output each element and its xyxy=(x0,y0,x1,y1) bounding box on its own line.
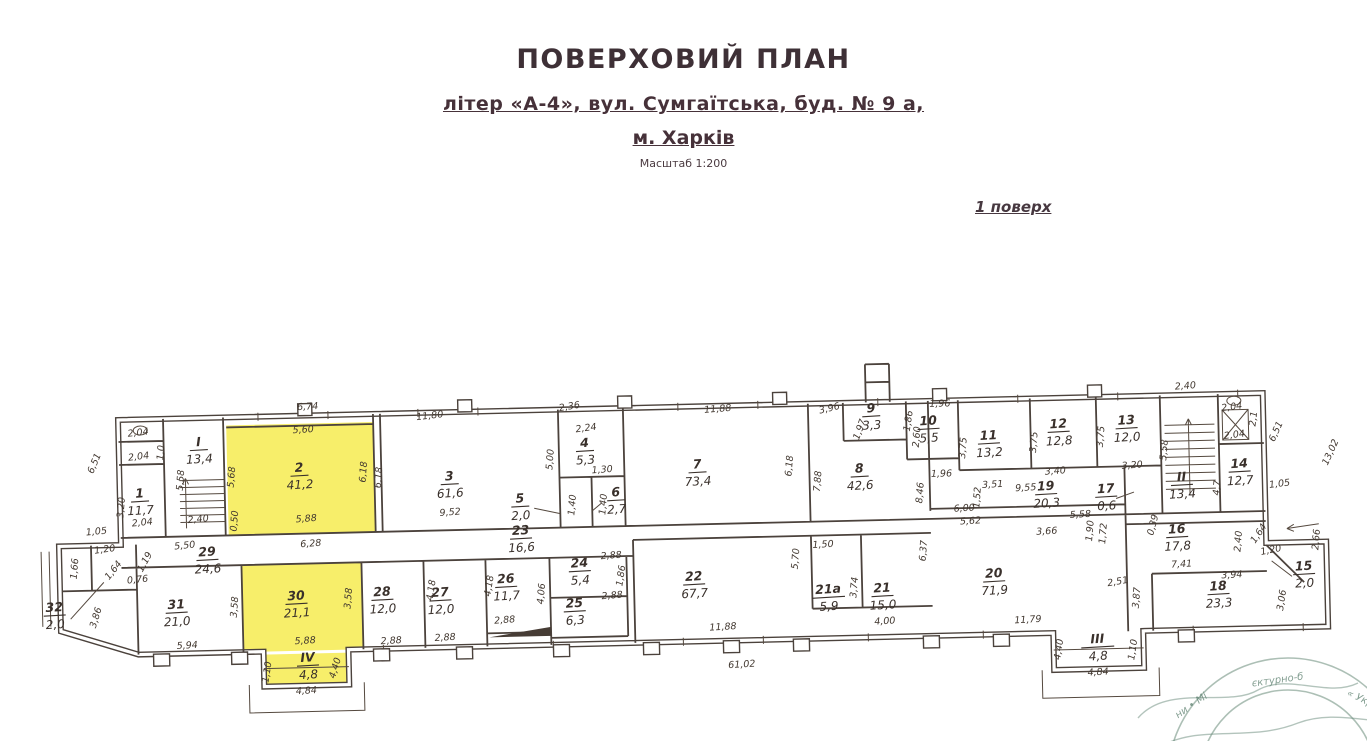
room-11-label: 1113,2 xyxy=(975,427,1004,461)
room-number: 32 xyxy=(45,599,63,615)
room-13-label: 1312,0 xyxy=(1112,411,1141,445)
room-25-label: 256,3 xyxy=(563,595,587,628)
room-number: 11 xyxy=(979,427,997,443)
dim-label: 1,20 xyxy=(1260,543,1283,558)
dim-label: 6,18 xyxy=(783,455,796,477)
dim-label: 5,50 xyxy=(174,540,196,553)
room-1-label: 111,7 xyxy=(126,485,155,519)
dim-label: 3,51 xyxy=(982,479,1004,491)
dim-label: 0,39 xyxy=(1145,513,1161,536)
room-19-label: 1920,3 xyxy=(1032,477,1061,511)
dim-label: 6,18 xyxy=(357,461,370,483)
room-area: 21,1 xyxy=(283,605,310,621)
dim-label: 4,40 xyxy=(1052,638,1066,661)
dim-label: 3,66 xyxy=(1036,526,1058,538)
dim-label: 4,7 xyxy=(1211,480,1223,496)
dim-label: 2,66 xyxy=(1310,529,1323,551)
dim-label: 5,70 xyxy=(790,548,803,570)
dim-label: 2,04 xyxy=(128,450,150,463)
stamp-text: єктурно-б xyxy=(1251,670,1304,689)
dim-label: 2,88 xyxy=(600,550,622,563)
dim-label: 1,10 xyxy=(1126,638,1140,661)
dim-label: 2,51 xyxy=(1106,575,1129,589)
room-8-label: 842,6 xyxy=(845,460,874,494)
dim-label: 6,74 xyxy=(297,401,319,413)
room-area: 5,4 xyxy=(570,573,590,588)
dim-label: 2,1 xyxy=(1247,411,1260,427)
room-number: 5 xyxy=(515,490,525,506)
room-17-label: 170,6 xyxy=(1094,480,1118,513)
room-number: 2 xyxy=(294,460,304,475)
dim-label: 3,40 xyxy=(1044,465,1066,478)
dim-label: 11,88 xyxy=(709,621,737,634)
room-area: 61,6 xyxy=(437,485,465,501)
room-number: 20 xyxy=(985,565,1004,581)
room-I-label: I13,4 xyxy=(185,433,214,467)
dim-label: 1,19 xyxy=(135,550,155,574)
room-area: 4,8 xyxy=(299,667,319,682)
dim-label: 3,86 xyxy=(88,606,105,629)
room-20-label: 2071,9 xyxy=(980,565,1009,599)
dim-label: 3,06 xyxy=(1275,589,1289,612)
room-number: 31 xyxy=(167,596,185,612)
dim-label: 3,94 xyxy=(1221,569,1243,581)
dim-label: 1,20 xyxy=(94,543,116,557)
dim-label: 1,64 xyxy=(103,559,125,582)
room-area: 6,3 xyxy=(565,613,585,628)
room-area: 2,0 xyxy=(1295,576,1315,591)
room-number: 21а xyxy=(815,581,842,597)
dim-label: 2,60 xyxy=(911,426,924,448)
dim-label: 5,58 xyxy=(1158,439,1171,461)
room-number: ІV xyxy=(300,649,317,665)
dim-label: 11,88 xyxy=(704,403,732,416)
dim-label: 3,87 xyxy=(1131,587,1144,609)
dim-label: 9,52 xyxy=(439,506,461,519)
room-number: 13 xyxy=(1117,412,1135,428)
room-area: 15,0 xyxy=(869,597,897,613)
scanned-floor-plan-page: { "header": { "title": "ПОВЕРХОВИЙ ПЛАН"… xyxy=(0,0,1367,741)
dim-label: 3,75 xyxy=(957,437,970,459)
stamp-text: « Украї xyxy=(1345,688,1367,714)
dim-label: 6,28 xyxy=(300,538,322,551)
dim-label: 1,96 xyxy=(929,398,950,409)
room-number: 10 xyxy=(919,412,938,428)
room-area: 24,6 xyxy=(194,561,222,577)
dim-label: 9,55 xyxy=(1015,482,1037,494)
room-26-label: 2611,7 xyxy=(492,570,521,604)
room-area: 13,4 xyxy=(186,451,213,467)
room-area: 42,6 xyxy=(846,478,874,494)
room-number: I xyxy=(196,434,202,449)
dim-label: 2,04 xyxy=(127,426,149,439)
room-III-label: III4,8 xyxy=(1080,630,1115,664)
room-area: 4,8 xyxy=(1088,648,1108,663)
dim-label: 1,30 xyxy=(591,464,613,477)
room-number: 19 xyxy=(1037,478,1056,494)
dim-label: 5,62 xyxy=(960,515,982,527)
dim-label: 6,18 xyxy=(373,467,386,489)
room-29-label: 2924,6 xyxy=(193,543,222,577)
dim-label: 3,75 xyxy=(1028,431,1041,453)
dim-label: 7,88 xyxy=(812,470,825,492)
room-number: 26 xyxy=(497,570,516,586)
dim-label: 4,84 xyxy=(295,685,317,697)
room-area: 73,4 xyxy=(684,474,711,490)
dim-label: 5,58 xyxy=(175,469,188,491)
room-number: 23 xyxy=(511,522,529,538)
dim-label: 61,02 xyxy=(728,659,756,672)
dim-label: 1,72 xyxy=(1097,523,1110,545)
room-area: 5,9 xyxy=(819,599,839,614)
room-number: 12 xyxy=(1049,415,1067,431)
dim-label: 2,24 xyxy=(575,422,597,436)
dim-label: 2,88 xyxy=(601,590,623,603)
dim-label: 5,94 xyxy=(176,640,198,652)
official-stamp: ни • Мієктурно-б« Украї xyxy=(1138,658,1367,741)
room-15-label: 152,0 xyxy=(1292,557,1316,590)
room-number: 1 xyxy=(135,485,145,500)
dim-label: 3,75 xyxy=(1095,426,1108,448)
dim-label: 2,40 xyxy=(1174,380,1196,393)
room-3-label: 361,6 xyxy=(435,467,464,501)
dim-label: 5,00 xyxy=(544,449,557,471)
room-24-label: 245,4 xyxy=(568,555,592,588)
dim-label: 0,76 xyxy=(127,574,149,587)
room-area: 16,6 xyxy=(508,540,536,556)
room-area: 2,0 xyxy=(511,508,531,523)
room-area: 11,7 xyxy=(493,588,521,604)
dim-label: 3,58 xyxy=(342,587,355,609)
dim-label: 1,40 xyxy=(566,494,579,516)
room-number: 25 xyxy=(565,595,584,611)
dim-label: 0,50 xyxy=(229,510,242,532)
room-number: II xyxy=(1176,469,1187,485)
room-area: 12,0 xyxy=(1113,429,1141,445)
dim-label: 4,00 xyxy=(874,615,896,627)
room-23-label: 2316,6 xyxy=(507,522,536,556)
dim-label: 8,46 xyxy=(914,482,927,504)
dim-label: 5,60 xyxy=(292,424,314,436)
room-number: 16 xyxy=(1168,521,1187,537)
room-area: 41,2 xyxy=(286,477,313,493)
room-number: 3 xyxy=(444,468,454,483)
room-area: 13,2 xyxy=(976,445,1003,461)
room-area: 12,8 xyxy=(1045,433,1073,449)
room-31-label: 3121,0 xyxy=(162,596,191,630)
room-number: 17 xyxy=(1097,480,1116,496)
dim-label: 11,79 xyxy=(1014,614,1042,627)
room-number: 30 xyxy=(287,587,306,603)
dim-label: 6,51 xyxy=(86,452,104,476)
dim-label: 7,41 xyxy=(1171,558,1193,570)
room-28-label: 2812,0 xyxy=(368,583,397,617)
room-area: 23,3 xyxy=(1205,595,1232,611)
dim-label: 6,37 xyxy=(917,540,930,562)
dim-label: 1,0 xyxy=(155,445,167,461)
dim-label: 5,88 xyxy=(295,513,317,526)
room-area: 67,7 xyxy=(681,586,709,602)
dim-label: 3,74 xyxy=(848,576,861,598)
room-number: 24 xyxy=(570,555,588,571)
room-number: 22 xyxy=(685,568,703,584)
room-number: 28 xyxy=(373,583,392,599)
dim-label: 2,04 xyxy=(1221,400,1243,414)
room-area: 21,0 xyxy=(163,614,191,630)
room-number: 21 xyxy=(873,580,891,596)
threshold-wedge xyxy=(489,627,551,637)
room-16-label: 1617,8 xyxy=(1163,520,1192,554)
room-7-label: 773,4 xyxy=(683,456,712,490)
room-number: 9 xyxy=(866,400,876,416)
floor-plan-drawing: 111,7I13,4241,2361,645,352,062,7773,4842… xyxy=(0,0,1367,741)
dim-label: 2,40 xyxy=(187,513,209,526)
room-21-label: 2115,0 xyxy=(868,579,897,613)
dim-label: 4,06 xyxy=(535,583,548,605)
room-number: 29 xyxy=(198,543,217,559)
room-area: 0,6 xyxy=(1097,498,1117,513)
dim-label: 1,05 xyxy=(1268,478,1290,491)
room-12-label: 1212,8 xyxy=(1044,415,1073,449)
dim-label: 11,80 xyxy=(416,409,444,423)
dim-label: 1,96 xyxy=(931,468,952,479)
dim-label: 1,05 xyxy=(85,526,107,539)
room-area: 2,7 xyxy=(607,502,627,517)
room-number: III xyxy=(1090,631,1105,647)
room-number: 7 xyxy=(692,456,702,472)
room-number: 8 xyxy=(854,460,864,476)
dim-label: 5,58 xyxy=(1070,509,1092,521)
room-area: 20,3 xyxy=(1033,495,1060,511)
room-area: 12,0 xyxy=(427,602,455,618)
room-area: 71,9 xyxy=(981,583,1008,599)
room-area: 13,4 xyxy=(1169,486,1196,502)
room-4-label: 45,3 xyxy=(575,434,596,467)
room-number: 4 xyxy=(579,435,590,451)
dim-label: 2,04 xyxy=(131,517,153,530)
room-number: 15 xyxy=(1294,558,1313,574)
dim-label: 5,68 xyxy=(226,466,239,488)
dim-label: 3,58 xyxy=(229,596,242,618)
room-number: 6 xyxy=(611,484,621,500)
room-area: 17,8 xyxy=(1164,538,1192,554)
dim-label: 3,20 xyxy=(115,497,128,519)
dim-label: 2,88 xyxy=(380,635,402,647)
dim-label: 1,50 xyxy=(812,539,834,551)
dim-label: 5,88 xyxy=(294,635,316,647)
room-area: 12,0 xyxy=(369,601,397,617)
dim-label: 2,88 xyxy=(434,632,456,644)
dim-label: 13,02 xyxy=(1320,438,1341,467)
dim-label: 1,90 xyxy=(1084,520,1097,542)
dim-label: 1,66 xyxy=(69,558,82,580)
dim-label: 6,51 xyxy=(1267,420,1286,444)
room-area: 2,0 xyxy=(45,617,65,632)
room-18-label: 1823,3 xyxy=(1204,577,1233,611)
dim-label: 1,40 xyxy=(597,493,610,515)
room-5-label: 52,0 xyxy=(510,490,531,523)
room-number: 14 xyxy=(1230,455,1248,471)
room-14-label: 1412,7 xyxy=(1225,455,1254,489)
dim-label: 4,84 xyxy=(1087,666,1109,678)
dim-label: 2,88 xyxy=(494,614,516,627)
room-area: 12,7 xyxy=(1226,473,1254,489)
room-22-label: 2267,7 xyxy=(680,568,709,602)
dim-label: 2,40 xyxy=(1232,530,1245,552)
stamp-text: ни • Мі xyxy=(1173,690,1210,721)
dim-label: 3,20 xyxy=(1121,459,1143,472)
